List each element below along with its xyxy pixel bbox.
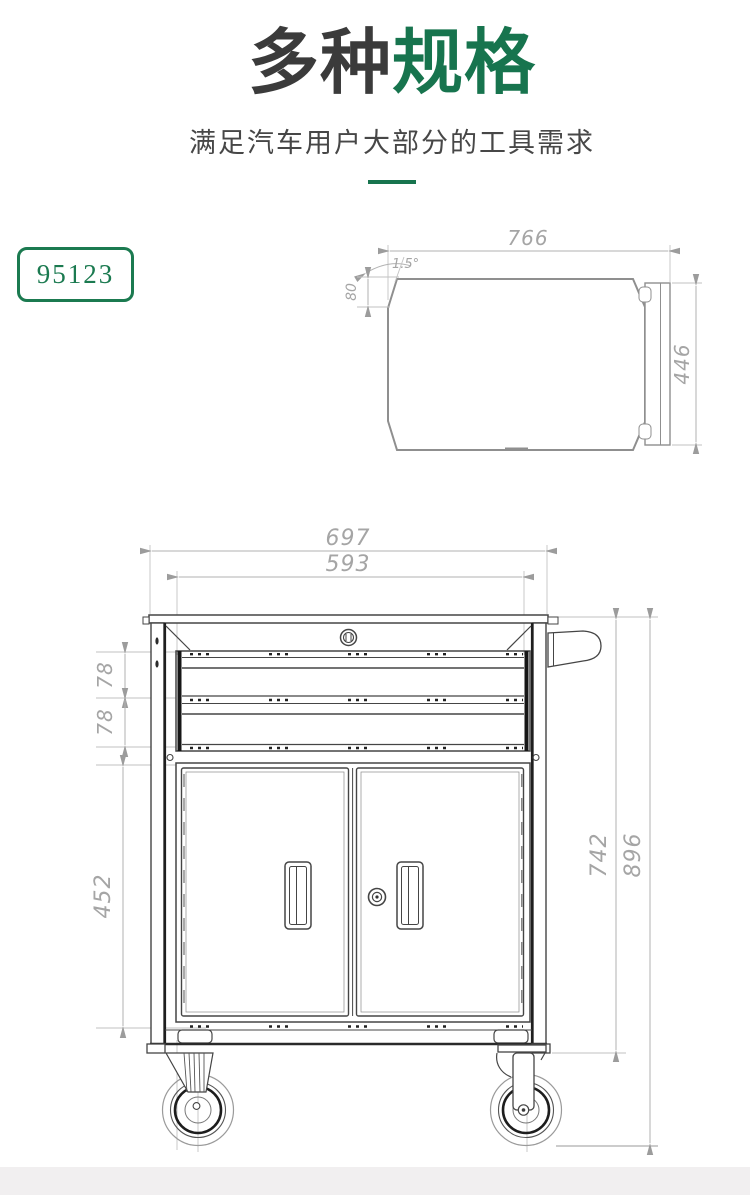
header: 多种规格 满足汽车用户大部分的工具需求 — [17, 26, 750, 184]
frame-screw — [167, 755, 173, 761]
dim-overall-width: 697 — [152, 526, 545, 551]
drawer-unit — [176, 651, 530, 751]
dim-label-766: 766 — [507, 226, 548, 250]
top-lock-icon — [341, 630, 357, 646]
dim-label-80: 80 — [344, 283, 360, 301]
handle-strip — [645, 283, 670, 445]
dim-door-height: 452 — [91, 767, 123, 1026]
dim-label-78a: 78 — [93, 661, 117, 688]
cabinet-body — [143, 615, 601, 1146]
left-door-handle — [285, 862, 311, 929]
strip-hook-bottom — [639, 424, 651, 439]
post-screw — [155, 637, 158, 644]
title-accent: 规格 — [392, 21, 536, 104]
top-view-drawing: 766 1.5° 80 4 — [340, 225, 750, 475]
dim-label-446: 446 — [670, 343, 694, 384]
strip-hook-top — [639, 287, 651, 302]
dim-top-width: 766 — [390, 226, 668, 251]
top-cap — [149, 615, 548, 623]
dim-label-78b: 78 — [93, 708, 117, 735]
top-view-body — [388, 279, 670, 450]
product-spec-page: 多种规格 满足汽车用户大部分的工具需求 95123 766 — [0, 0, 750, 1195]
dim-label-452: 452 — [91, 874, 116, 919]
right-caster-wheel — [491, 1045, 562, 1146]
right-door — [357, 768, 524, 1016]
model-number: 95123 — [37, 259, 115, 290]
axle-hub — [193, 1103, 200, 1110]
dim-overall-height: 896 — [556, 620, 658, 1146]
left-post — [151, 623, 164, 1044]
title-underline — [368, 180, 416, 184]
dim-drawer-width: 593 — [179, 552, 522, 577]
page-title: 多种规格 — [17, 26, 750, 101]
side-handle — [548, 631, 601, 667]
dim-label-742: 742 — [587, 833, 612, 878]
caster-plate — [498, 1045, 546, 1052]
dim-label-593: 593 — [326, 552, 371, 577]
caster-stem — [513, 1053, 534, 1110]
dim-drawer1-height: 78 — [93, 654, 125, 696]
post-screw — [155, 660, 158, 667]
left-door — [182, 768, 349, 1016]
dim-label-896: 896 — [621, 833, 646, 878]
door-unit — [176, 763, 530, 1027]
right-post — [533, 623, 546, 1044]
door-lock-icon — [369, 889, 386, 906]
left-foot — [147, 1044, 165, 1053]
title-primary: 多种 — [248, 21, 392, 104]
dim-drawer2-height: 78 — [93, 700, 125, 745]
base-frame — [147, 1030, 550, 1053]
model-badge: 95123 — [17, 247, 134, 302]
right-door-handle — [397, 862, 423, 929]
subtitle: 满足汽车用户大部分的工具需求 — [17, 121, 750, 160]
dim-top-depth: 446 — [670, 283, 702, 445]
dim-label-angle: 1.5° — [392, 257, 419, 272]
dim-body-height: 742 — [587, 620, 616, 1050]
dim-label-697: 697 — [326, 526, 371, 551]
front-view-drawing: 697 593 78 78 452 742 896 — [85, 525, 685, 1165]
next-section-strip — [0, 1167, 750, 1195]
